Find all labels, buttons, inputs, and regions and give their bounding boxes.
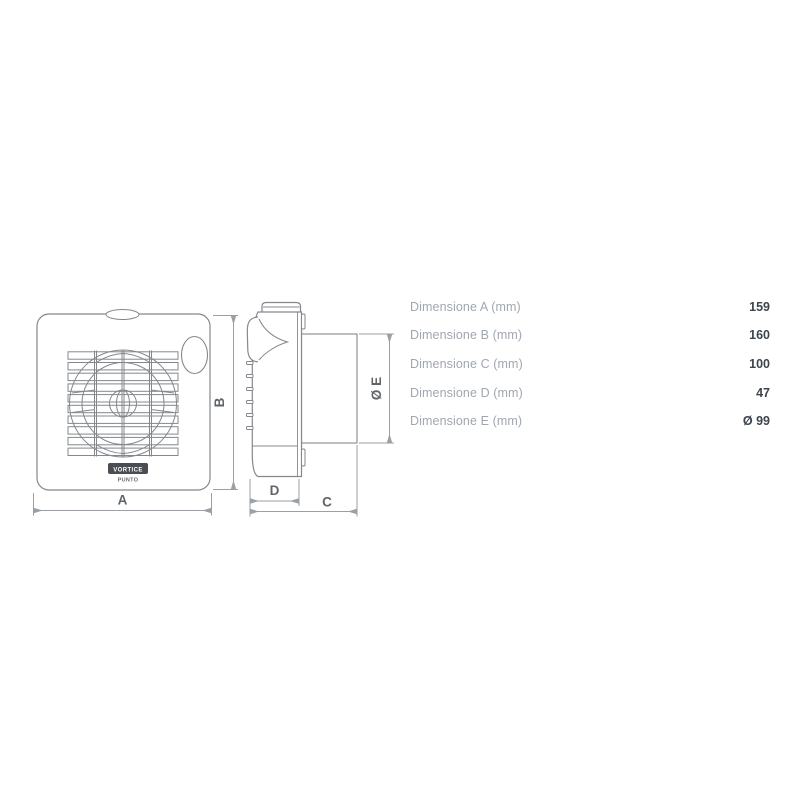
dimensions-table: Dimensione A (mm) 159 Dimensione B (mm) … bbox=[410, 297, 770, 440]
dimension-label: Dimensione D (mm) bbox=[410, 386, 523, 400]
front-view: VORTICE PUNTO bbox=[37, 310, 210, 491]
table-row-dimension-e: Dimensione E (mm) Ø 99 bbox=[410, 412, 770, 431]
dimension-value: 159 bbox=[749, 300, 770, 314]
mounting-tab-bottom bbox=[302, 449, 306, 466]
dimension-value: 160 bbox=[749, 328, 770, 342]
dimension-value: 47 bbox=[756, 386, 770, 400]
table-row-dimension-b: Dimensione B (mm) 160 bbox=[410, 326, 770, 345]
mounting-tab-top bbox=[302, 314, 306, 329]
dimension-a-letter: A bbox=[118, 493, 128, 508]
dimension-label: Dimensione B (mm) bbox=[410, 328, 522, 342]
dimension-b-letter: B bbox=[212, 397, 227, 407]
knob bbox=[182, 337, 208, 374]
product-dimensions-page: VORTICE PUNTO A B bbox=[0, 0, 800, 800]
dimension-label: Dimensione E (mm) bbox=[410, 414, 522, 428]
duct-tube bbox=[302, 334, 358, 443]
table-row-dimension-a: Dimensione A (mm) 159 bbox=[410, 297, 770, 316]
dimension-e-letter: Ø E bbox=[369, 377, 384, 400]
table-row-dimension-d: Dimensione D (mm) 47 bbox=[410, 383, 770, 402]
dimension-d-letter: D bbox=[270, 483, 280, 498]
side-body bbox=[252, 312, 301, 477]
dimension-value: 100 bbox=[749, 357, 770, 371]
dimension-c-letter: C bbox=[322, 495, 332, 510]
top-tab bbox=[106, 310, 139, 320]
model-text: PUNTO bbox=[118, 478, 139, 484]
table-row-dimension-c: Dimensione C (mm) 100 bbox=[410, 354, 770, 373]
brand-logo-text: VORTICE bbox=[113, 468, 142, 474]
dimension-label: Dimensione A (mm) bbox=[410, 300, 521, 314]
dimension-label: Dimensione C (mm) bbox=[410, 357, 523, 371]
dimension-value: Ø 99 bbox=[743, 414, 770, 428]
side-view bbox=[247, 303, 358, 477]
cover-bulge bbox=[247, 317, 258, 362]
